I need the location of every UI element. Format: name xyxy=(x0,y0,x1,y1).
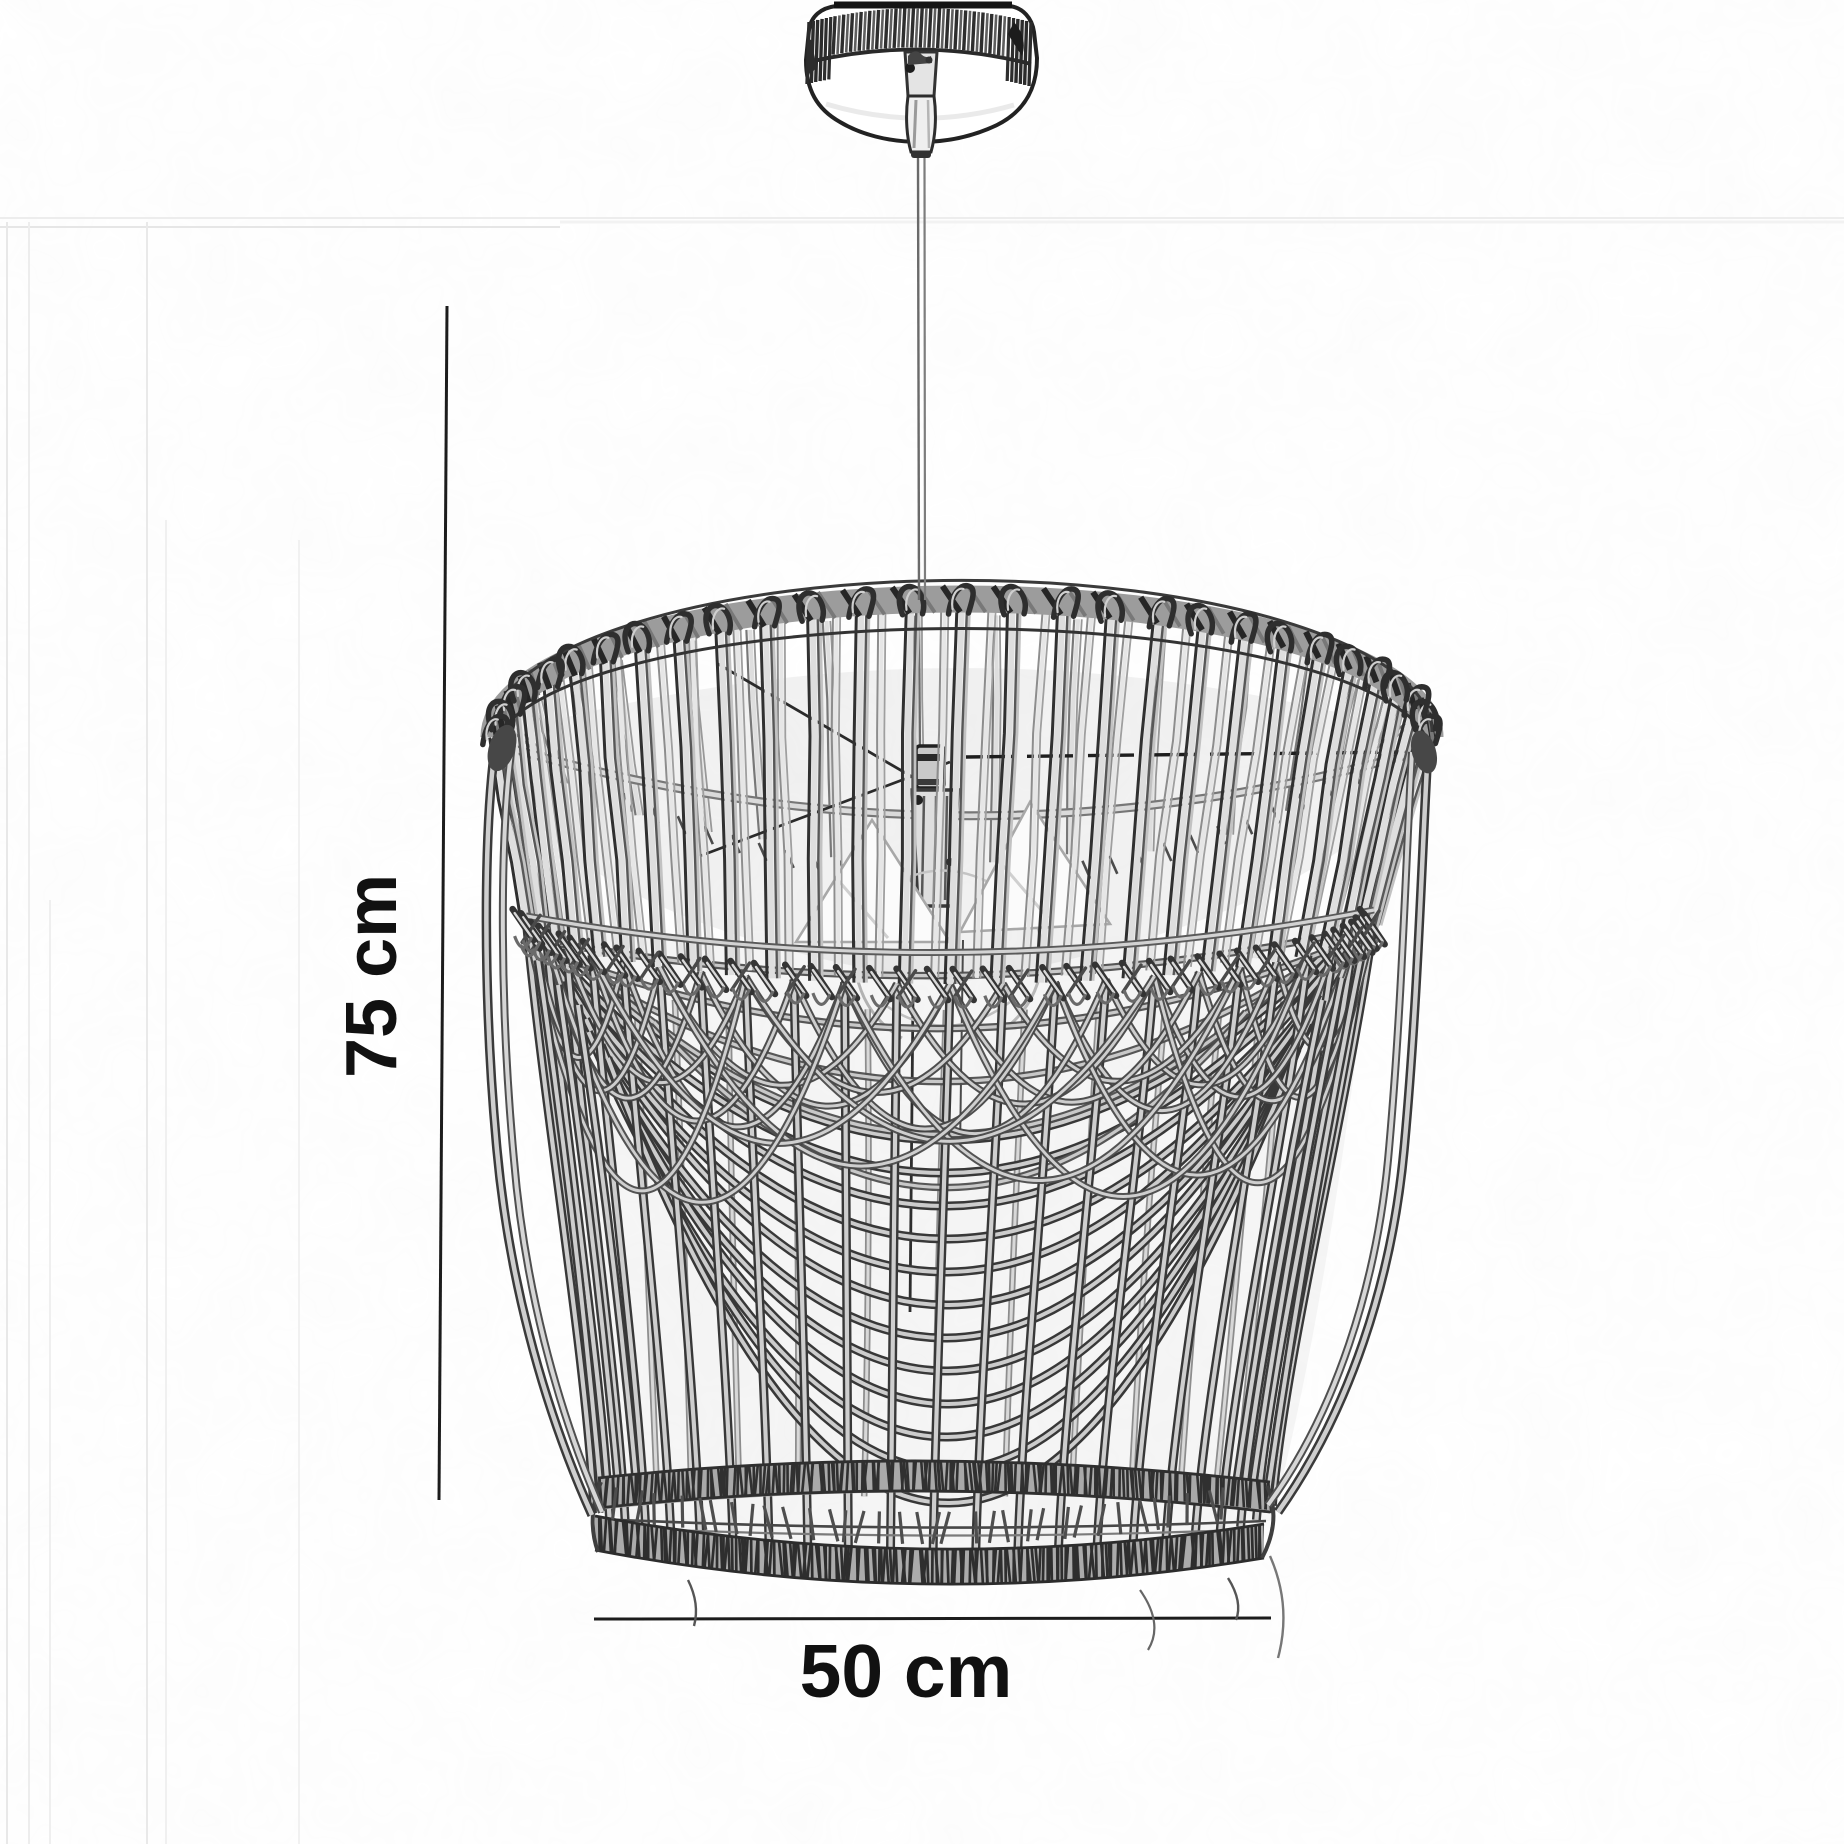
svg-text:50 cm: 50 cm xyxy=(800,1629,1013,1713)
svg-text:75 cm: 75 cm xyxy=(332,874,412,1078)
